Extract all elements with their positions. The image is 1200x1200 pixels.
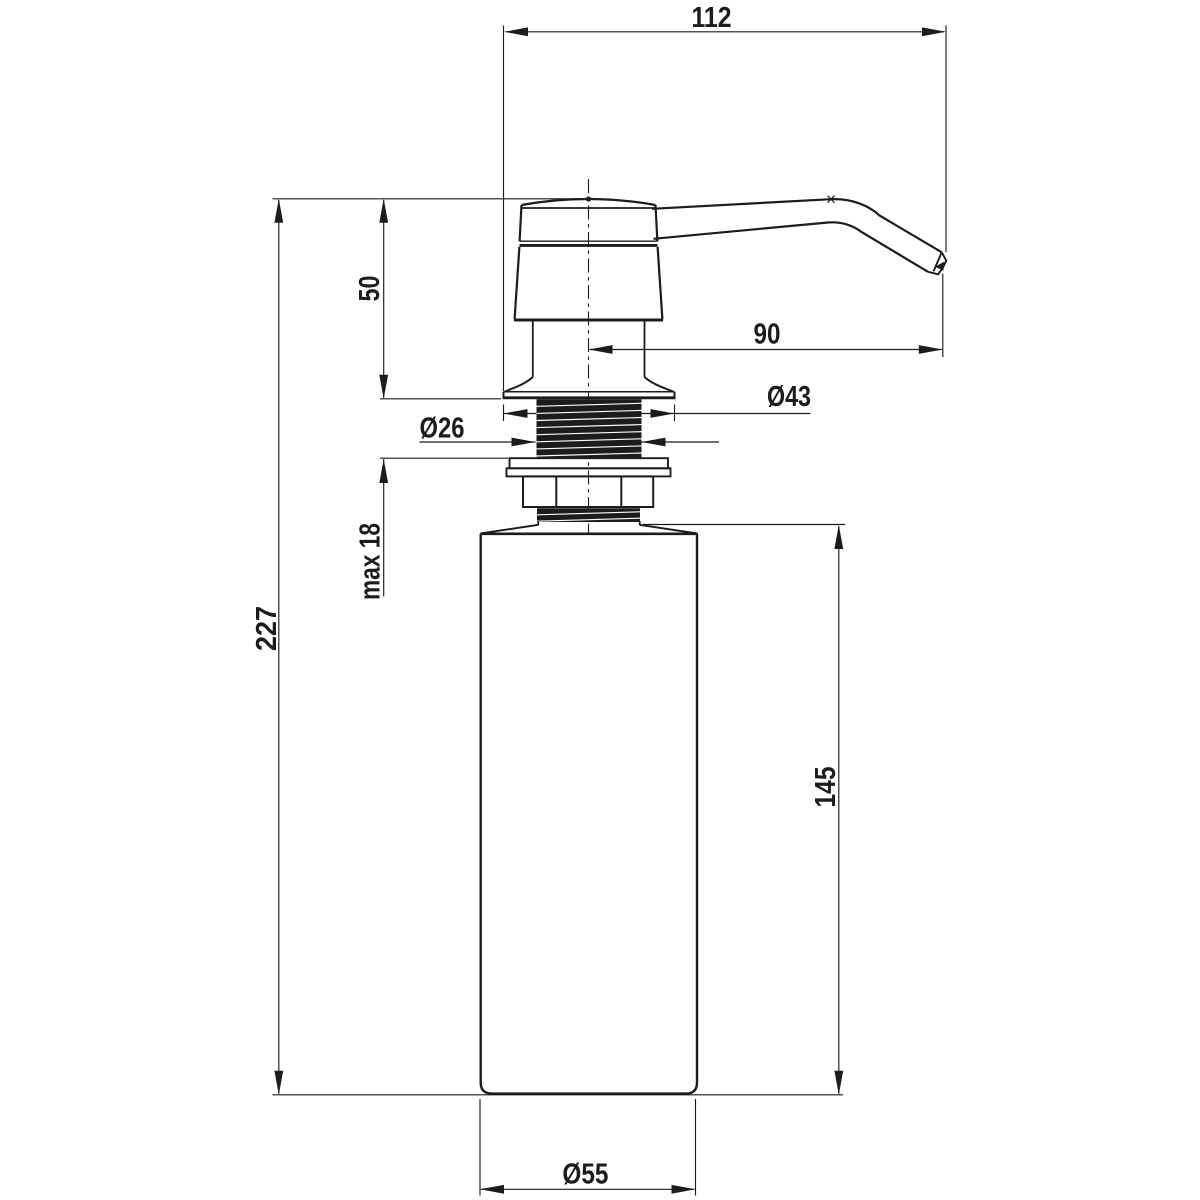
svg-text:Ø43: Ø43: [767, 381, 811, 413]
svg-text:145: 145: [810, 767, 842, 808]
svg-text:Ø26: Ø26: [420, 413, 465, 445]
svg-text:50: 50: [354, 276, 386, 302]
svg-text:Ø55: Ø55: [562, 1158, 608, 1190]
svg-text:112: 112: [692, 2, 732, 34]
svg-text:227: 227: [251, 606, 283, 651]
svg-text:max 18: max 18: [355, 523, 387, 600]
svg-text:90: 90: [754, 319, 781, 351]
